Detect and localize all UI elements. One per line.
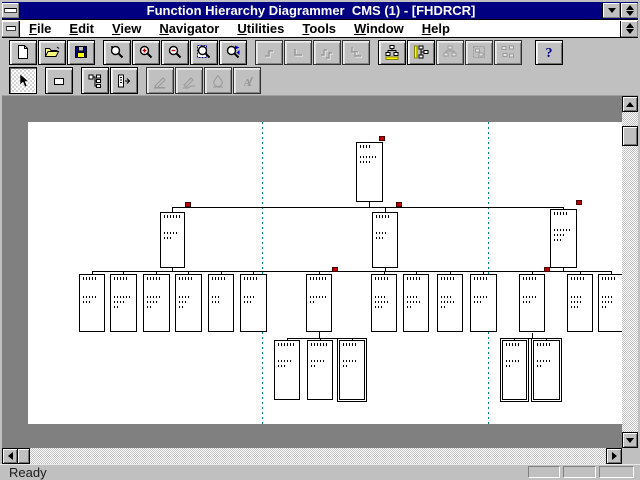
node-label-marks bbox=[343, 343, 358, 346]
node-label-marks bbox=[506, 343, 520, 346]
node-text-line bbox=[83, 301, 92, 303]
node-label-marks bbox=[164, 215, 180, 218]
function-node[interactable] bbox=[437, 274, 463, 332]
change-marker bbox=[379, 136, 385, 141]
document-system-menu-icon bbox=[6, 26, 16, 31]
draw-box-button[interactable] bbox=[45, 67, 73, 94]
window-title: Function Hierarchy Diagrammer CMS (1) - … bbox=[20, 2, 602, 19]
node-label-marks bbox=[537, 343, 551, 346]
node-text-line bbox=[571, 296, 582, 298]
node-text-line bbox=[179, 296, 189, 298]
node-text-block bbox=[534, 360, 559, 367]
document-system-menu-button[interactable] bbox=[2, 21, 20, 37]
tree-collapse-icon bbox=[116, 73, 132, 89]
restore-up-icon bbox=[626, 5, 634, 10]
menu-navigator[interactable]: Navigator bbox=[150, 21, 228, 36]
node-text-line bbox=[602, 306, 606, 308]
node-text-block bbox=[80, 296, 104, 303]
node-text-line bbox=[506, 360, 521, 362]
node-label-marks bbox=[83, 277, 98, 280]
canvas[interactable] bbox=[28, 122, 622, 424]
zoom-page-button[interactable] bbox=[190, 40, 218, 65]
vertical-scroll-thumb[interactable] bbox=[622, 126, 638, 146]
connector-line bbox=[92, 271, 612, 272]
node-text-block bbox=[307, 296, 331, 303]
node-text-block bbox=[551, 229, 576, 241]
node-text-line bbox=[554, 229, 570, 231]
title-bar: Function Hierarchy Diagrammer CMS (1) - … bbox=[2, 2, 638, 20]
node-text-line bbox=[441, 301, 454, 303]
status-panel bbox=[563, 466, 596, 478]
node-text-line bbox=[179, 301, 187, 303]
node-text-line bbox=[147, 301, 158, 303]
function-node[interactable] bbox=[160, 212, 185, 268]
node-text-line bbox=[375, 296, 385, 298]
folder-open-icon bbox=[44, 44, 60, 60]
layout-tree-icon bbox=[442, 44, 458, 60]
scroll-down-icon bbox=[626, 438, 634, 443]
system-menu-icon bbox=[4, 8, 17, 13]
magnifier-minus-icon bbox=[167, 44, 183, 60]
svg-text:?: ? bbox=[546, 46, 553, 60]
node-text-block bbox=[111, 296, 136, 308]
node-text-block bbox=[520, 296, 544, 303]
vertical-scroll-track[interactable] bbox=[622, 96, 638, 448]
select-button[interactable] bbox=[9, 67, 37, 94]
link-corner-all-button bbox=[342, 40, 370, 65]
node-text-line bbox=[407, 306, 413, 308]
node-text-line bbox=[310, 296, 327, 298]
node-text-line bbox=[376, 232, 388, 234]
node-text-line bbox=[212, 296, 221, 298]
help-button[interactable]: ? bbox=[535, 40, 563, 65]
edit-fill-button bbox=[204, 67, 232, 94]
node-text-line bbox=[278, 365, 285, 367]
node-text-line bbox=[537, 365, 543, 367]
node-text-block bbox=[471, 296, 496, 303]
status-bar: Ready bbox=[0, 464, 640, 480]
tree-expand-icon bbox=[87, 73, 103, 89]
node-text-line bbox=[114, 296, 130, 298]
node-text-block bbox=[357, 156, 382, 163]
function-node[interactable] bbox=[519, 274, 545, 332]
node-text-line bbox=[407, 301, 420, 303]
node-text-line bbox=[114, 301, 124, 303]
node-text-line bbox=[311, 365, 317, 367]
document-restore-button[interactable] bbox=[620, 21, 638, 37]
scroll-left-button[interactable] bbox=[2, 448, 18, 464]
edit-text-button: A bbox=[233, 67, 261, 94]
new-button[interactable] bbox=[9, 40, 37, 65]
node-text-line bbox=[376, 237, 384, 239]
node-text-line bbox=[523, 296, 536, 298]
node-text-block bbox=[340, 360, 364, 367]
function-node[interactable] bbox=[110, 274, 137, 332]
expand-hierarchy-button[interactable] bbox=[81, 67, 109, 94]
edit-line-button bbox=[146, 67, 174, 94]
node-text-line bbox=[441, 296, 451, 298]
node-text-line bbox=[244, 296, 256, 298]
change-marker bbox=[576, 200, 582, 205]
node-text-line bbox=[343, 360, 356, 362]
node-label-marks bbox=[244, 277, 259, 280]
connector-line bbox=[514, 338, 547, 339]
layout-vertical-button[interactable] bbox=[407, 40, 435, 65]
menu-tools[interactable]: Tools bbox=[293, 21, 345, 36]
minimize-button[interactable] bbox=[602, 3, 620, 18]
magnifier-page-icon bbox=[196, 44, 212, 60]
minimize-icon bbox=[608, 8, 616, 13]
node-label-marks bbox=[407, 277, 422, 280]
node-text-block bbox=[568, 296, 592, 308]
node-text-line bbox=[179, 306, 185, 308]
system-menu-button[interactable] bbox=[2, 3, 20, 18]
menu-window[interactable]: Window bbox=[345, 21, 413, 36]
function-node[interactable] bbox=[533, 340, 560, 400]
magnifier-plus-icon bbox=[138, 44, 154, 60]
function-node[interactable] bbox=[550, 209, 577, 268]
node-text-line bbox=[375, 301, 388, 303]
collapse-hierarchy-button[interactable] bbox=[110, 67, 138, 94]
node-text-line bbox=[212, 301, 219, 303]
menu-help[interactable]: Help bbox=[413, 21, 459, 36]
change-marker bbox=[396, 202, 402, 207]
node-text-block bbox=[372, 296, 396, 308]
pen-polyline-icon bbox=[181, 73, 197, 89]
layout-box-icon bbox=[471, 44, 487, 60]
node-text-line bbox=[114, 306, 120, 308]
function-node[interactable] bbox=[470, 274, 497, 332]
node-text-line bbox=[311, 360, 325, 362]
node-text-line bbox=[554, 234, 566, 236]
node-label-marks bbox=[311, 343, 327, 346]
pen-fill-icon bbox=[210, 73, 226, 89]
status-panel bbox=[528, 466, 560, 478]
link-corner-multi-icon bbox=[348, 44, 364, 60]
node-text-block bbox=[176, 296, 201, 308]
menu-items: FileEditViewNavigatorUtilitiesToolsWindo… bbox=[20, 21, 620, 36]
node-label-marks bbox=[474, 277, 489, 280]
status-message: Ready bbox=[0, 465, 528, 480]
function-node[interactable] bbox=[175, 274, 202, 332]
node-text-line bbox=[474, 296, 488, 298]
scroll-right-icon bbox=[612, 452, 617, 460]
node-text-line bbox=[343, 365, 347, 367]
node-text-block bbox=[438, 296, 462, 308]
node-label-marks bbox=[212, 277, 226, 280]
toolbar-main: ? bbox=[2, 38, 638, 66]
node-text-line bbox=[506, 365, 512, 367]
magnifier-icon bbox=[109, 44, 125, 60]
edit-polyline-button bbox=[175, 67, 203, 94]
node-text-block bbox=[241, 296, 266, 303]
node-text-line bbox=[474, 301, 482, 303]
layout-tree-button bbox=[436, 40, 464, 65]
floppy-save-icon bbox=[73, 44, 89, 60]
node-label-marks bbox=[114, 277, 128, 280]
node-label-marks bbox=[441, 277, 456, 280]
node-text-line bbox=[602, 296, 613, 298]
function-node[interactable] bbox=[306, 274, 332, 332]
node-label-marks bbox=[278, 343, 294, 346]
pen-line-icon bbox=[152, 73, 168, 89]
zoom-in-button[interactable] bbox=[132, 40, 160, 65]
node-text-line bbox=[244, 301, 252, 303]
node-text-line bbox=[278, 360, 292, 362]
rect-tool-icon bbox=[51, 73, 67, 89]
open-button[interactable] bbox=[38, 40, 66, 65]
node-text-block bbox=[209, 296, 233, 303]
menu-edit[interactable]: Edit bbox=[60, 21, 103, 36]
node-text-line bbox=[554, 239, 561, 241]
doc-new-icon bbox=[15, 44, 31, 60]
connector-line bbox=[172, 207, 564, 208]
node-text-block bbox=[275, 360, 299, 367]
node-text-line bbox=[360, 156, 376, 158]
scroll-right-button[interactable] bbox=[606, 448, 622, 464]
node-text-line bbox=[602, 301, 612, 303]
node-text-block bbox=[144, 296, 169, 308]
function-node[interactable] bbox=[79, 274, 105, 332]
menu-bar: FileEditViewNavigatorUtilitiesToolsWindo… bbox=[2, 20, 638, 38]
svg-text:A: A bbox=[244, 77, 252, 89]
layout-selection-button bbox=[465, 40, 493, 65]
zoom-navigator-button[interactable] bbox=[219, 40, 247, 65]
save-button[interactable] bbox=[67, 40, 95, 65]
node-text-line bbox=[407, 296, 417, 298]
change-marker bbox=[185, 202, 191, 207]
restore-button[interactable] bbox=[620, 3, 638, 18]
node-text-line bbox=[164, 232, 179, 234]
node-text-block bbox=[404, 296, 428, 308]
scroll-down-button[interactable] bbox=[622, 432, 638, 448]
link-bend-icon bbox=[261, 44, 277, 60]
link-corner-icon bbox=[290, 44, 306, 60]
layout-all-button bbox=[494, 40, 522, 65]
node-label-marks bbox=[554, 212, 569, 215]
node-text-line bbox=[360, 161, 370, 163]
link-move-all-button bbox=[313, 40, 341, 65]
scroll-left-icon bbox=[8, 452, 13, 460]
restore-down-icon bbox=[626, 11, 634, 16]
node-label-marks bbox=[571, 277, 585, 280]
link-bend-multi-icon bbox=[319, 44, 335, 60]
node-label-marks bbox=[360, 145, 372, 148]
function-node[interactable] bbox=[208, 274, 234, 332]
document-restore-up-icon bbox=[626, 23, 634, 28]
link-corner-button bbox=[284, 40, 312, 65]
function-node[interactable] bbox=[240, 274, 267, 332]
horizontal-scroll-track[interactable] bbox=[2, 448, 622, 464]
page-break-guide bbox=[488, 122, 489, 424]
function-node[interactable] bbox=[356, 142, 383, 202]
vertical-scrollbar[interactable] bbox=[622, 96, 638, 448]
function-node[interactable] bbox=[502, 340, 527, 400]
node-text-block bbox=[503, 360, 526, 367]
function-node[interactable] bbox=[598, 274, 622, 332]
change-marker bbox=[332, 267, 338, 272]
function-node[interactable] bbox=[339, 340, 365, 400]
node-text-line bbox=[147, 296, 162, 298]
node-text-line bbox=[83, 296, 97, 298]
layout-grid-icon bbox=[500, 44, 516, 60]
layout-h-icon bbox=[384, 44, 400, 60]
node-text-block bbox=[599, 296, 622, 308]
node-text-block bbox=[373, 232, 397, 239]
scrollbar-corner bbox=[622, 448, 638, 464]
node-text-line bbox=[571, 306, 578, 308]
node-text-line bbox=[571, 301, 583, 303]
function-node[interactable] bbox=[307, 340, 333, 400]
horizontal-scrollbar[interactable] bbox=[2, 448, 622, 464]
function-node[interactable] bbox=[403, 274, 429, 332]
status-panel bbox=[599, 466, 634, 478]
zoom-button[interactable] bbox=[103, 40, 131, 65]
node-text-line bbox=[537, 360, 550, 362]
function-node[interactable] bbox=[371, 274, 397, 332]
page-break-guide bbox=[262, 122, 263, 424]
node-label-marks bbox=[602, 277, 616, 280]
node-label-marks bbox=[147, 277, 161, 280]
app-window: { "window": { "title": "Function Hierarc… bbox=[0, 0, 640, 480]
pen-text-icon: A bbox=[239, 73, 255, 89]
node-label-marks bbox=[375, 277, 390, 280]
node-label-marks bbox=[523, 277, 538, 280]
scroll-up-button[interactable] bbox=[622, 96, 638, 112]
function-node[interactable] bbox=[274, 340, 300, 400]
menu-utilities[interactable]: Utilities bbox=[228, 21, 293, 36]
document-restore-down-icon bbox=[626, 29, 634, 34]
function-node[interactable] bbox=[372, 212, 398, 268]
select-arrow-icon bbox=[15, 73, 31, 89]
node-label-marks bbox=[310, 277, 326, 280]
node-label-marks bbox=[376, 215, 389, 218]
horizontal-scroll-thumb[interactable] bbox=[17, 448, 30, 464]
toolbar-drawing: A bbox=[2, 66, 638, 96]
node-label-marks bbox=[179, 277, 193, 280]
node-text-line bbox=[147, 306, 152, 308]
function-node[interactable] bbox=[567, 274, 593, 332]
node-text-line bbox=[310, 301, 314, 303]
function-node[interactable] bbox=[143, 274, 170, 332]
workspace bbox=[2, 96, 638, 448]
layout-horizontal-button[interactable] bbox=[378, 40, 406, 65]
change-marker bbox=[544, 267, 550, 272]
help-icon: ? bbox=[541, 44, 557, 60]
node-text-line bbox=[441, 306, 446, 308]
link-move-button bbox=[255, 40, 283, 65]
node-text-line bbox=[375, 306, 383, 308]
node-text-block bbox=[161, 232, 184, 239]
scroll-up-icon bbox=[626, 102, 634, 107]
zoom-out-button[interactable] bbox=[161, 40, 189, 65]
node-text-line bbox=[523, 301, 530, 303]
layout-v-icon bbox=[413, 44, 429, 60]
menu-view[interactable]: View bbox=[103, 21, 150, 36]
magnifier-nav-icon bbox=[225, 44, 241, 60]
node-text-block bbox=[308, 360, 332, 367]
node-text-line bbox=[164, 237, 173, 239]
menu-file[interactable]: File bbox=[20, 21, 60, 36]
